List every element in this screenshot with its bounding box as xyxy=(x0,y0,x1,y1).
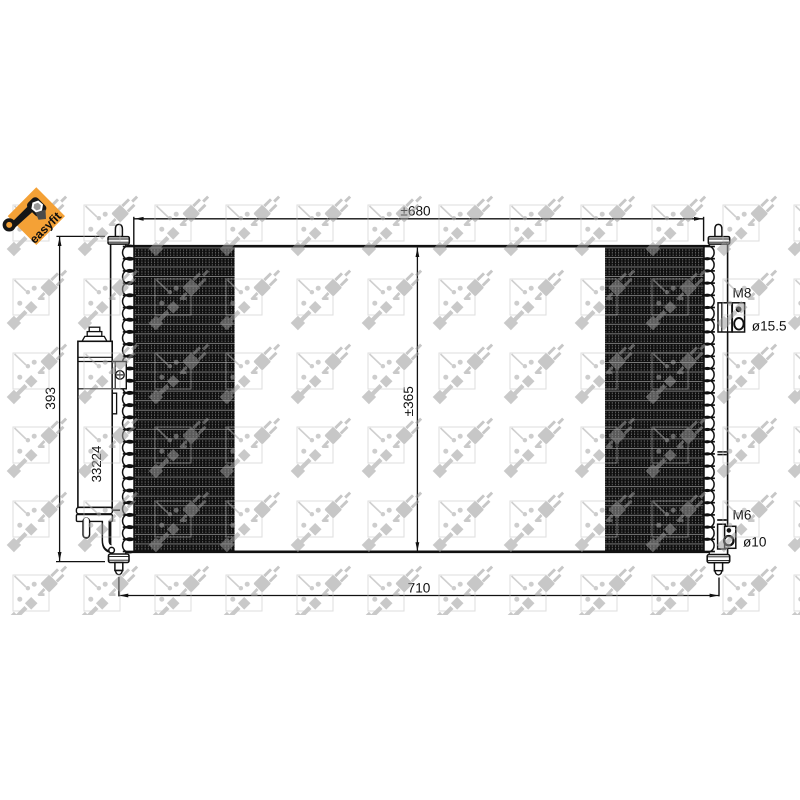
svg-text:±365: ±365 xyxy=(401,386,416,416)
svg-text:393: 393 xyxy=(43,387,58,410)
svg-text:ø15.5: ø15.5 xyxy=(752,318,787,333)
